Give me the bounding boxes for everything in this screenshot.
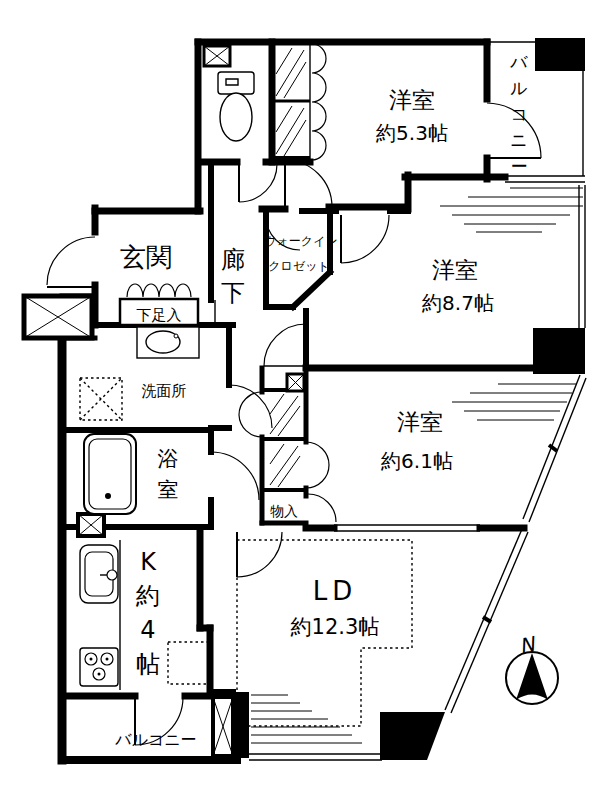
wic-label-line1: ウォークイン <box>264 234 337 248</box>
living-dining-size: 約12.3帖 <box>291 615 380 639</box>
toilet-icon <box>218 72 254 141</box>
shaft-hall-icon <box>287 374 304 391</box>
shaft-kitchen-icon <box>78 514 104 536</box>
washbasin-icon <box>137 327 199 358</box>
living-dining-name: LD <box>313 576 358 606</box>
bedroom61-name: 洋室 <box>397 409 443 435</box>
bedroom61-size: 約6.1帖 <box>380 449 453 473</box>
balcony-pier-block <box>233 692 249 758</box>
balcony-top-label: バルコニー <box>509 52 528 176</box>
floorplan-drawing: N 洋室 約5.3帖 バルコニー 洋室 約8.7帖 ウォークイン クロゼット 玄… <box>0 0 600 800</box>
kitchen-sink-icon <box>80 545 118 603</box>
shaft-balcony-icon <box>213 697 233 756</box>
mid-right-corner-block <box>533 328 585 374</box>
stove-icon <box>80 648 118 686</box>
floorplan-page: N 洋室 約5.3帖 バルコニー 洋室 約8.7帖 ウォークイン クロゼット 玄… <box>0 0 600 800</box>
wic-label-line2: クロゼット <box>268 259 329 273</box>
meter-box-icon <box>24 296 92 338</box>
bedroom53-size: 約5.3帖 <box>375 121 448 145</box>
shaft-toilet-icon <box>204 46 230 66</box>
washroom-label: 洗面所 <box>142 382 187 400</box>
bedroom87-size: 約8.7帖 <box>421 291 494 315</box>
bedroom87-name: 洋室 <box>432 257 478 283</box>
bathtub-icon <box>84 434 136 514</box>
bedroom53-name: 洋室 <box>389 87 435 113</box>
balcony-corner-block <box>535 38 585 71</box>
entrance-label: 玄関 <box>120 242 172 272</box>
balcony-bottom-label: バルコニー <box>114 730 197 749</box>
storage-label: 物入 <box>270 503 298 519</box>
shoe-cabinet-label: 下足入 <box>137 306 182 324</box>
